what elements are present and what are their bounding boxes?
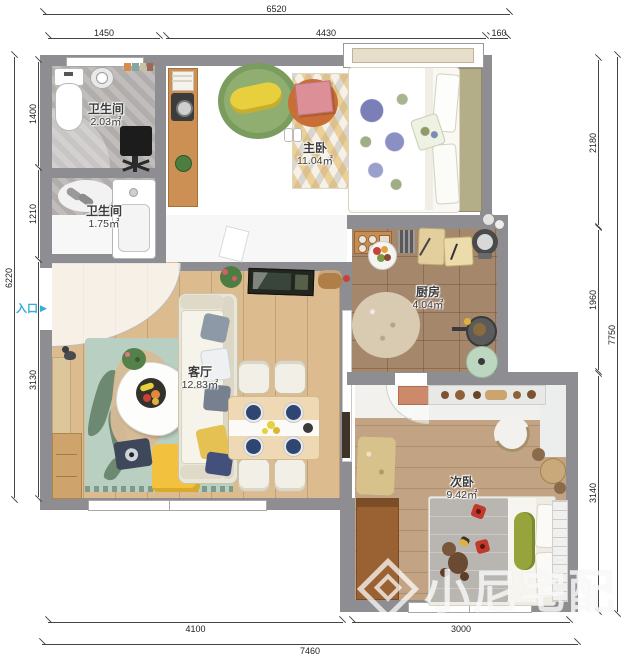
entrance-arrow-icon: ▶ (40, 303, 47, 314)
shoe-cabinet-icon (52, 357, 71, 435)
teapot-icon (303, 423, 313, 433)
dining-chair-icon (274, 360, 306, 394)
dim-right-seg2: 1960 (598, 230, 599, 370)
watermark-text: 小尼宅配 (424, 556, 616, 622)
floral-duvet (349, 68, 425, 210)
decor-basket-icon (318, 270, 342, 289)
dining-chair-icon (238, 360, 270, 394)
vanity-counter-icon (428, 385, 546, 405)
dim-left-total: 6220 (14, 57, 15, 498)
cutting-board-icon (417, 228, 445, 266)
watermark-cube-icon (357, 558, 419, 620)
dim-top-seg1: 1450 (48, 38, 160, 39)
tv-plant-icon (220, 266, 242, 288)
washbasin-icon (90, 67, 114, 89)
window-living-bottom (88, 500, 267, 511)
pan-icon (452, 316, 496, 344)
dining-chair-icon (274, 458, 306, 492)
grill-rack-icon (398, 230, 415, 253)
wall-left-upper (40, 55, 52, 268)
room-label-living: 客厅 12.83㎡ (160, 366, 240, 392)
slippers-icon (284, 128, 302, 140)
room-label-kitchen: 厨房 4.04㎡ (388, 286, 468, 312)
dim-right-total: 7750 (617, 57, 618, 612)
room-label-bathroom-1: 卫生间 2.03㎡ (66, 103, 146, 129)
watermark: 小尼宅配 (366, 556, 616, 622)
washer-icon (171, 93, 194, 121)
dim-bottom-seg1: 4100 (48, 622, 343, 623)
dim-top-total: 6520 (43, 14, 510, 15)
rug-plant-icon (122, 348, 146, 370)
wall-second-left (340, 505, 355, 612)
bird-decor-icon (62, 346, 78, 362)
curved-chair-icon (492, 414, 528, 448)
dim-right-seg1: 2180 (598, 60, 599, 225)
decor-flower-icon (343, 275, 350, 282)
shelf-items-icon (124, 63, 154, 72)
entrance-label: 入口▶ (16, 300, 47, 316)
room-label-second: 次卧 9.42㎡ (422, 476, 502, 502)
robot-vacuum-icon (472, 229, 500, 259)
dim-left-seg2: 1210 (38, 170, 39, 258)
office-chair-icon (118, 126, 154, 174)
console-cabinet-icon (52, 433, 82, 499)
dim-top-seg2: 4430 (166, 38, 486, 39)
dim-bottom-total: 7460 (42, 644, 578, 645)
dim-left-seg3: 3130 (38, 262, 39, 497)
stool-set-icon (532, 448, 570, 494)
floor-cushion-icon (356, 436, 396, 495)
floorplan-canvas: 卫生间 2.03㎡ 卫生间 1.75㎡ (0, 0, 640, 666)
wall-board-icon (342, 412, 350, 458)
wardrobe-icon (168, 68, 198, 207)
dim-left-seg1: 1400 (38, 62, 39, 166)
room-label-master: 主卧 11.04㎡ (275, 142, 355, 168)
cutting-board-icon-2 (443, 236, 473, 266)
wall-bath-divider-v (155, 66, 166, 262)
dim-top-seg3: 160 (490, 38, 508, 39)
pink-stool-icon (294, 80, 333, 116)
green-plate-icon (466, 346, 498, 378)
plant-small-icon (175, 155, 192, 172)
dining-table-icon (228, 396, 320, 460)
tv-icon (248, 268, 315, 296)
dining-chair-icon (238, 458, 270, 492)
master-bed-icon (348, 66, 480, 212)
fruit-plate-icon (368, 241, 397, 270)
door-gap-second (395, 373, 427, 385)
dim-bottom-seg2: 3000 (352, 622, 570, 623)
window-master-top (343, 43, 484, 68)
navy-tray-icon (113, 438, 153, 471)
room-label-bathroom-2: 卫生间 1.75㎡ (64, 205, 144, 231)
vent-icon-2 (494, 219, 505, 230)
wall-left-lower (40, 330, 52, 510)
